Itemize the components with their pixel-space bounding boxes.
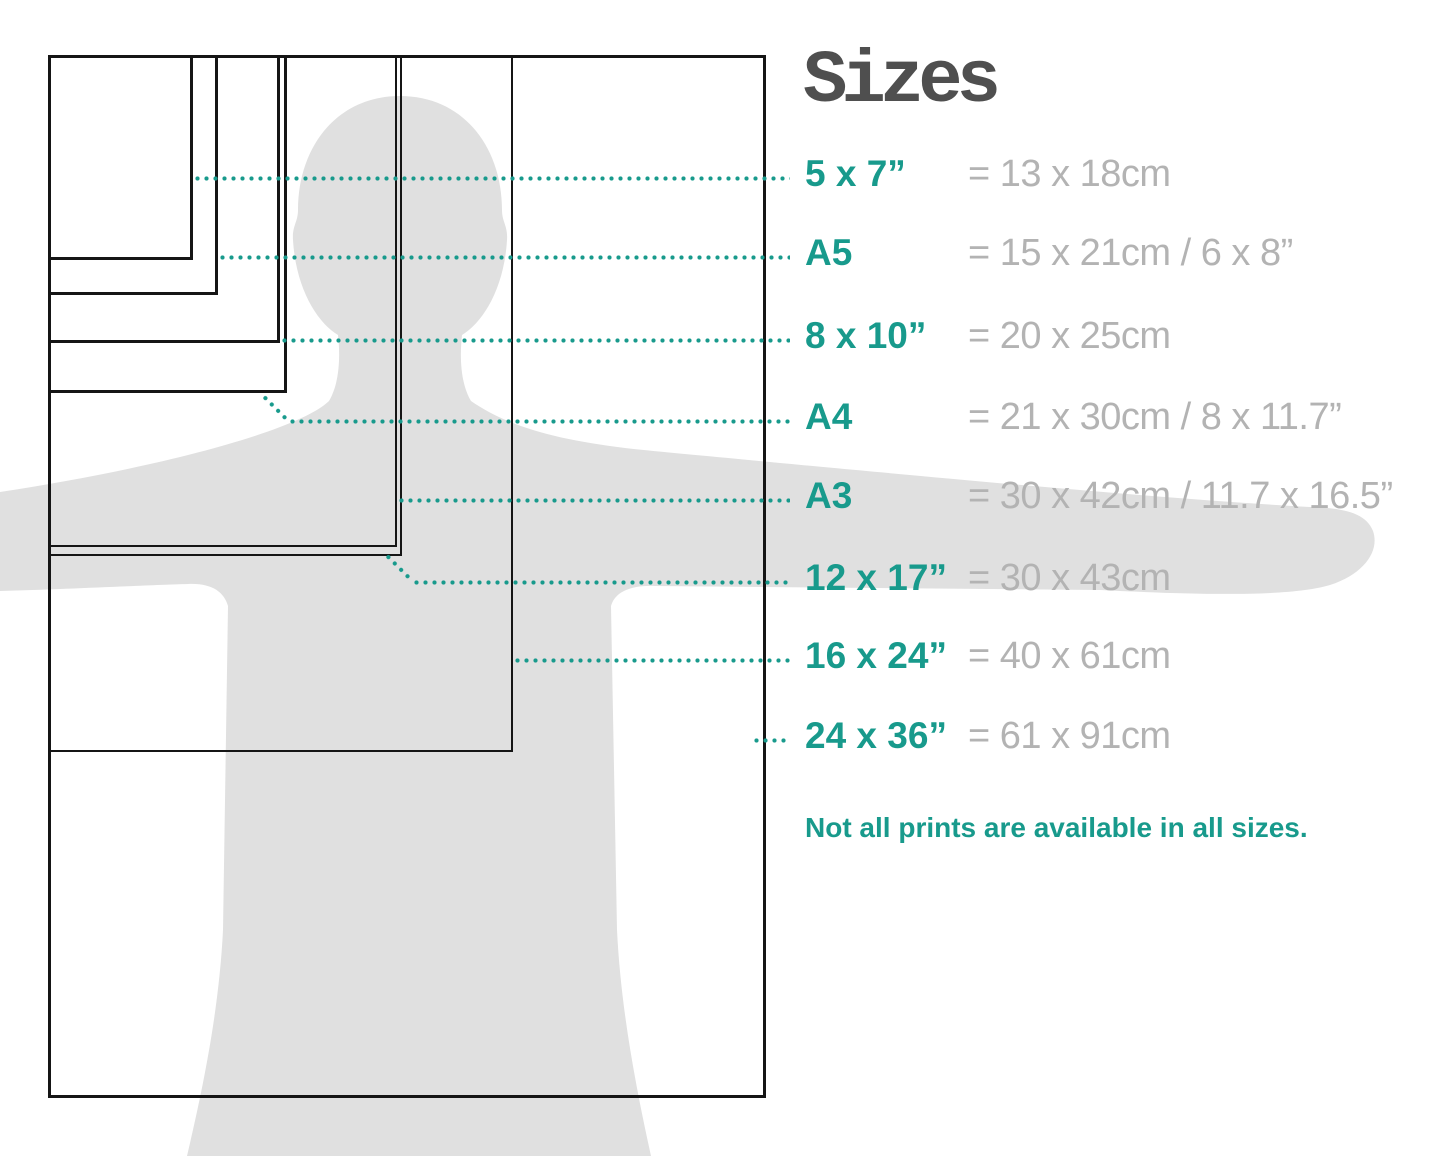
leader-line-24x36 xyxy=(752,738,790,743)
size-label-a5: A5 xyxy=(805,232,968,274)
size-equiv-16x24: = 40 x 61cm xyxy=(968,635,1171,678)
size-row-5x7: 5 x 7” = 13 x 18cm xyxy=(805,153,1435,203)
size-equiv-a5: = 15 x 21cm / 6 x 8” xyxy=(968,232,1293,275)
size-equiv-a4: = 21 x 30cm / 8 x 11.7” xyxy=(968,396,1341,439)
size-equiv-12x17: = 30 x 43cm xyxy=(968,557,1171,600)
size-row-8x10: 8 x 10” = 20 x 25cm xyxy=(805,315,1435,365)
size-chart-canvas: Sizes 5 x 7” = 13 x 18cm A5 = 15 x 21cm … xyxy=(0,0,1445,1156)
size-row-24x36: 24 x 36” = 61 x 91cm xyxy=(805,715,1435,765)
size-row-a5: A5 = 15 x 21cm / 6 x 8” xyxy=(805,232,1435,282)
size-row-16x24: 16 x 24” = 40 x 61cm xyxy=(805,635,1435,685)
leader-line-a5 xyxy=(218,255,790,260)
size-equiv-a3: = 30 x 42cm / 11.7 x 16.5” xyxy=(968,475,1393,518)
size-label-5x7: 5 x 7” xyxy=(805,153,968,195)
size-label-24x36: 24 x 36” xyxy=(805,715,968,757)
leader-line-12x17 xyxy=(412,580,790,585)
leader-line-a3 xyxy=(397,498,790,503)
size-equiv-24x36: = 61 x 91cm xyxy=(968,715,1171,758)
size-equiv-8x10: = 20 x 25cm xyxy=(968,315,1171,358)
size-row-12x17: 12 x 17” = 30 x 43cm xyxy=(805,557,1435,607)
page-title: Sizes xyxy=(803,40,995,124)
leader-line-16x24 xyxy=(513,658,790,663)
size-label-a3: A3 xyxy=(805,475,968,517)
size-label-16x24: 16 x 24” xyxy=(805,635,968,677)
size-row-a3: A3 = 30 x 42cm / 11.7 x 16.5” xyxy=(805,475,1435,525)
availability-note: Not all prints are available in all size… xyxy=(805,812,1308,844)
leader-line-8x10 xyxy=(280,338,790,343)
size-label-a4: A4 xyxy=(805,396,968,438)
leader-line-a4 xyxy=(288,419,790,424)
leader-line-5x7 xyxy=(193,176,790,181)
size-label-8x10: 8 x 10” xyxy=(805,315,968,357)
size-equiv-5x7: = 13 x 18cm xyxy=(968,153,1171,196)
size-row-a4: A4 = 21 x 30cm / 8 x 11.7” xyxy=(805,396,1435,446)
size-label-12x17: 12 x 17” xyxy=(805,557,968,599)
